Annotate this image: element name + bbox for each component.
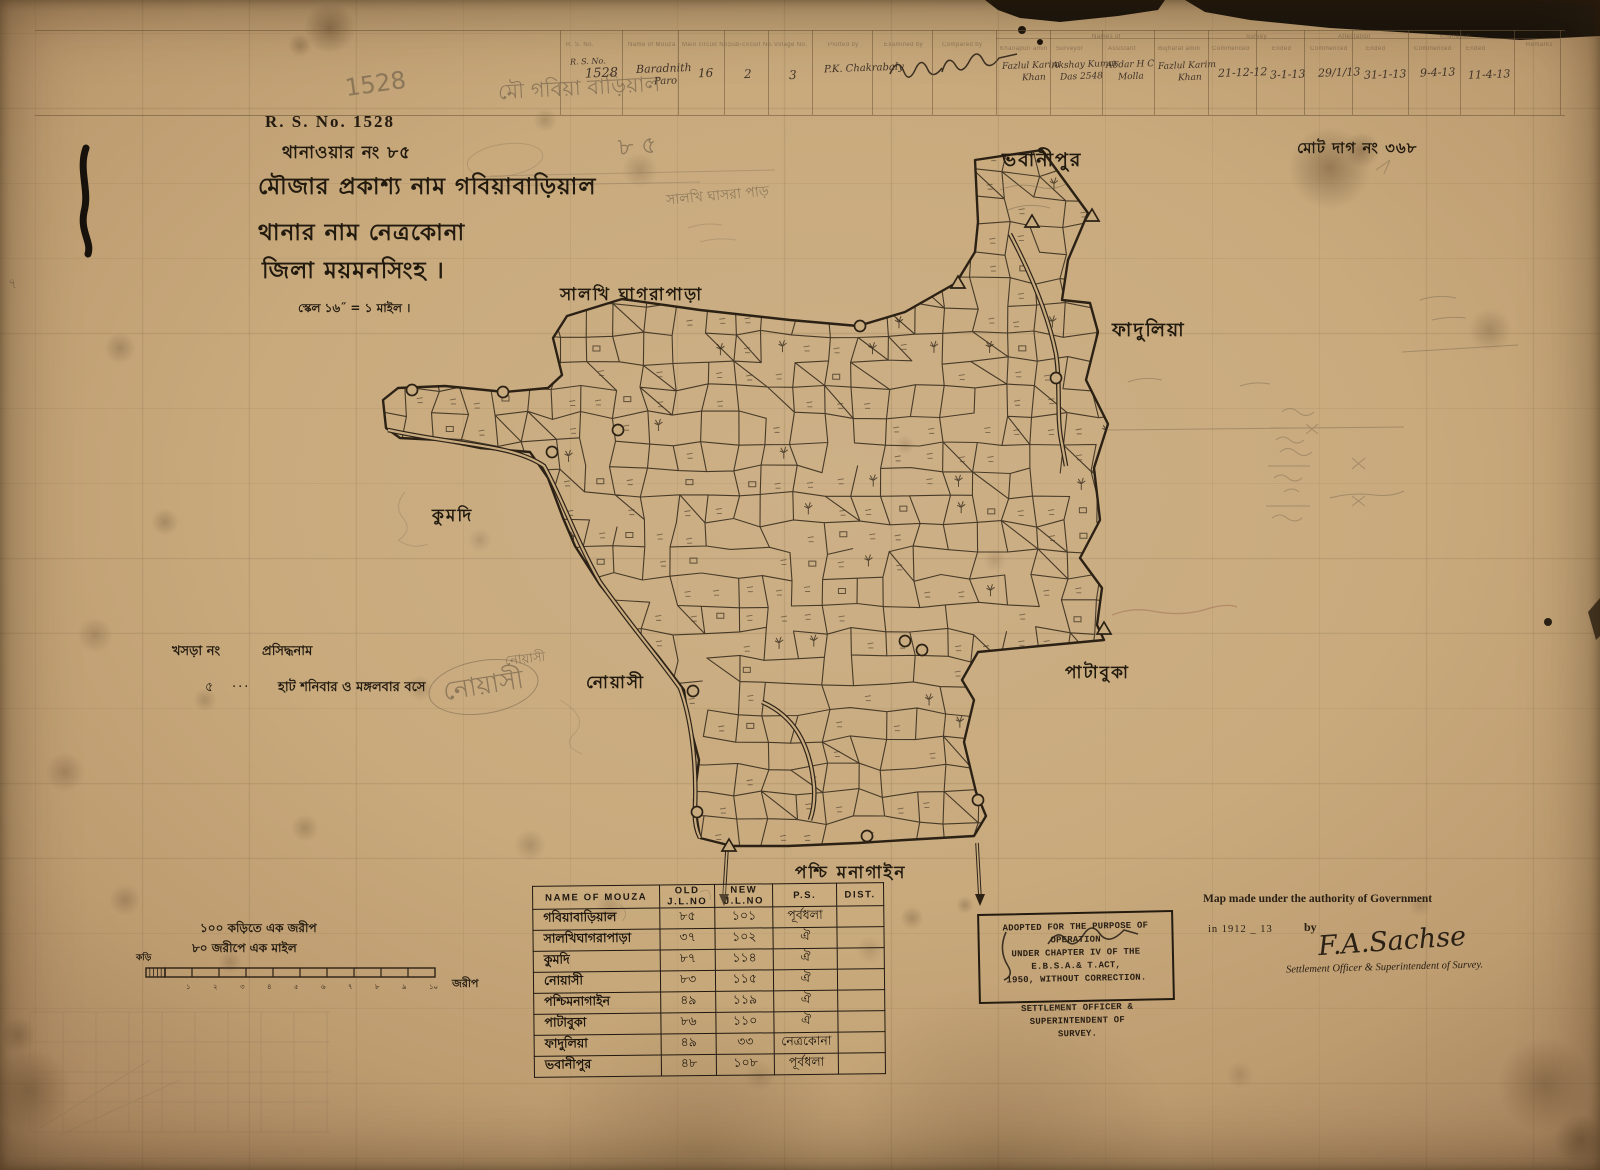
dist-cell [838, 990, 885, 1011]
mouza-table-body: গবিয়াবাড়িয়াল৮৫১০১পূর্বধলাসালখিঘাগরাপা… [533, 906, 886, 1078]
strip-entry: 16 [698, 66, 714, 81]
dist-cell [837, 969, 884, 990]
strip-column-rule [1560, 30, 1561, 115]
new-jl-cell: ১১৯ [716, 991, 774, 1013]
strip-entry: 1528 [585, 65, 619, 81]
place-label: ফাদুলিয়া [1112, 316, 1186, 348]
strip-entry: 21-12-12 [1218, 65, 1268, 80]
strip-header: Examined by [884, 42, 923, 48]
ps-cell: নেত্রকোনা [774, 1032, 838, 1054]
thana-war-line: থানাওয়ার নং ৮৫ [282, 140, 411, 168]
mouza-name-cell: পশ্চিমনাগাইন [534, 992, 661, 1014]
mouza-table-header: NAME OF MOUZA [533, 885, 660, 909]
new-jl-cell: ১১৪ [715, 949, 773, 971]
district-line: জিলা ময়মনসিংহ । [262, 252, 445, 291]
strip-header: Plotted by [828, 42, 859, 48]
khasra-desc: হাট শনিবার ও মঙ্গলবার বসে [278, 678, 425, 699]
strip-header: Survey [1246, 34, 1267, 40]
scale-tick: ১০ [429, 981, 438, 993]
strip-header: Ended [1466, 46, 1485, 52]
strip-entry: Khan [1178, 73, 1202, 84]
scale-tick: ৫ [294, 981, 299, 993]
strip-header: Commenced [1414, 46, 1452, 52]
dist-cell [837, 906, 884, 927]
scale-left-label: কড়ি [136, 950, 151, 965]
strip-header: Surveyor [1056, 46, 1083, 52]
stamp-line: ADOPTED FOR THE PURPOSE OF OPERATION [983, 919, 1168, 949]
mouza-name-cell: গবিয়াবাড়িয়াল [533, 908, 660, 930]
scale-mile-line: ৮০ জরীপে এক মাইল [192, 940, 297, 960]
scale-tick: ৮ [375, 981, 380, 993]
authority-year: in 1912 _ 13 [1208, 924, 1273, 935]
place-label: সালখি ঘাগরাপাড়া [560, 282, 703, 310]
scale-tick: ৬ [321, 981, 326, 993]
strip-entry: 9-4-13 [1420, 65, 1456, 79]
scale-bar [146, 968, 435, 977]
mouza-reference-table: NAME OF MOUZAOLD J.L.NONEW J.L.NOP.S.DIS… [532, 882, 886, 1078]
strip-entry: Baradnith [636, 61, 692, 76]
mouza-table-header: OLD J.L.NO [660, 884, 715, 908]
mouza-name-line: মৌজার প্রকাশ্য নাম গবিয়াবাড়িয়াল [258, 168, 596, 207]
strip-rule-top [35, 30, 1565, 31]
new-jl-cell: ১০৮ [716, 1054, 774, 1076]
famous-name-label: প্রসিদ্ধনাম [262, 642, 312, 663]
scale-tick: ৯ [402, 981, 407, 993]
stamp-line: 1950, WITHOUT CORRECTION. [984, 971, 1168, 988]
strip-header: Sub-circuit No. [728, 42, 773, 48]
strip-entry: Das 2548 [1060, 71, 1103, 82]
strip-header: Khanapuri amin [1000, 46, 1048, 52]
strip-header: Ended [1366, 46, 1385, 52]
mouza-table-header: NEW J.L.NO [715, 884, 773, 908]
old-jl-cell: ৮৫ [660, 907, 715, 929]
dist-cell [838, 1011, 885, 1032]
strip-header: Khanapuri [1440, 34, 1471, 40]
ps-cell: ঐ [774, 969, 838, 991]
strip-header: Assistant [1108, 46, 1136, 52]
khasra-num: ৫ [205, 678, 213, 699]
strip-entry: 31-1-13 [1364, 67, 1407, 81]
strip-column-rule [996, 30, 997, 115]
strip-header: Commenced [1310, 46, 1348, 52]
strip-entry: Khan [1022, 73, 1046, 84]
strip-column-rule [932, 30, 933, 115]
dist-cell [838, 1053, 885, 1074]
total-plot-note: মোট দাগ নং ৩৬৮ [1297, 137, 1417, 162]
authority-line: Map made under the authority of Governme… [1203, 893, 1432, 905]
scale-line: স্কেল ১৬˝ = ১ মাইল । [298, 300, 410, 320]
scale-tick: ২ [213, 981, 218, 993]
map-sheet: R. S. No.Name of MouzaMain circuit No.Su… [0, 0, 1600, 1170]
strip-column-rule [1460, 30, 1461, 115]
new-jl-cell: ১১০ [716, 1012, 774, 1034]
scale-tick: ৭ [348, 981, 353, 993]
adoption-stamp: ADOPTED FOR THE PURPOSE OF OPERATION UND… [977, 910, 1175, 1004]
old-jl-cell: ৮৬ [661, 1012, 716, 1034]
place-label: ভবানীপুর [1002, 146, 1082, 178]
new-jl-cell: ১০১ [715, 907, 773, 929]
ps-cell: ঐ [774, 1011, 838, 1033]
strip-entry: Paro [654, 76, 677, 88]
strip-column-rule [1408, 30, 1409, 115]
scale-kori-line: ১০০ কড়িতে এক জরীপ [200, 920, 317, 940]
strip-entry: 11-4-13 [1468, 67, 1511, 81]
stamp-line: SETTLEMENT OFFICER & SUPERINTENDENT OF [985, 1000, 1170, 1030]
strip-header: Ended [1272, 46, 1291, 52]
paper-tears [83, 0, 1600, 640]
ps-cell: পূর্বধলা [775, 1053, 839, 1075]
ps-cell: পূর্বধলা [773, 906, 837, 928]
dist-cell [837, 948, 884, 969]
pencil-note: ৮ ৫ [617, 127, 658, 170]
stamp-line: UNDER CHAPTER IV OF THE E.B.S.A.& T.ACT, [984, 945, 1169, 975]
place-label: কুমদি [432, 503, 473, 531]
strip-entry: 3 [789, 68, 797, 82]
scale-right-label: জরীপ [452, 975, 479, 994]
worksheet-grid [30, 1012, 330, 1135]
strip-header: Main circuit No. [682, 42, 730, 48]
old-jl-cell: ৪৮ [661, 1054, 716, 1076]
dist-cell [837, 927, 884, 948]
pencil-note: ৭ [8, 272, 17, 296]
khasra-dots: ... [232, 676, 250, 691]
strip-header: Attestation [1338, 34, 1371, 40]
strip-header: Village No. [774, 42, 807, 48]
mouza-name-cell: নোয়াসী [533, 971, 660, 993]
scale-tick: ১ [186, 981, 191, 993]
strip-column-rule [1050, 30, 1051, 115]
mouza-table-row: ভবানীপুর৪৮১০৮পূর্বধলা [534, 1053, 885, 1078]
ps-cell: ঐ [774, 990, 838, 1012]
ps-cell: ঐ [773, 948, 837, 970]
old-jl-cell: ৪৯ [661, 991, 716, 1013]
place-label: পশ্চি মনাগাইন [795, 860, 906, 888]
strip-entry: 2 [744, 67, 752, 81]
dist-cell [838, 1032, 885, 1053]
khasra-no-label: খসড়া নং [172, 642, 220, 663]
mouza-name-cell: কুমদি [533, 950, 660, 972]
scale-tick: ৩ [240, 981, 245, 993]
place-label: নোয়াসী [586, 670, 645, 698]
mouza-name-cell: সালখিঘাগরাপাড়া [533, 929, 660, 951]
strip-column-rule [1208, 30, 1209, 115]
mouza-name-cell: ফাদুলিয়া [534, 1034, 661, 1056]
old-jl-cell: ৪৯ [661, 1033, 716, 1055]
strip-column-rule [1154, 30, 1155, 115]
strip-header: Compared by [942, 42, 982, 48]
ps-cell: ঐ [773, 927, 837, 949]
mouza-name-cell: পাটাবুকা [534, 1013, 661, 1035]
strip-rule-sub [996, 38, 1560, 39]
old-jl-cell: ৩৭ [660, 928, 715, 950]
strip-entry: Fazlul Karim [1158, 60, 1216, 72]
mouza-name-cell: ভবানীপুর [534, 1055, 661, 1077]
strip-entry: Molla [1118, 72, 1144, 83]
authority-by: by [1304, 920, 1317, 935]
place-label: পাটাবুকা [1065, 660, 1130, 688]
new-jl-cell: ১১৫ [716, 970, 774, 992]
strip-column-rule [812, 30, 813, 115]
strip-header: Bujharat amin [1158, 46, 1200, 52]
strip-header: Name of Mouza [628, 42, 676, 48]
parcel-mesh [370, 141, 1160, 878]
old-jl-cell: ৮৭ [660, 949, 715, 971]
old-jl-cell: ৮৩ [660, 970, 715, 992]
strip-header: Names of [1092, 34, 1121, 40]
strip-header: R. S. No. [566, 42, 594, 48]
strip-entry: 29/1/13 [1318, 65, 1361, 79]
scale-tick: ৪ [267, 981, 272, 993]
new-jl-cell: ১০২ [715, 928, 773, 950]
strip-header: Remarks [1526, 42, 1553, 48]
strip-entry: Abdar H C [1106, 59, 1154, 71]
new-jl-cell: ৩৩ [716, 1033, 774, 1055]
strip-entry: 3-1-13 [1270, 67, 1306, 81]
thana-name-line: থানার নাম নেত্রকোনা [258, 214, 465, 253]
rs-number: R. S. No. 1528 [265, 112, 395, 132]
strip-header: Commenced [1212, 46, 1250, 52]
strip-column-rule [1514, 30, 1515, 115]
